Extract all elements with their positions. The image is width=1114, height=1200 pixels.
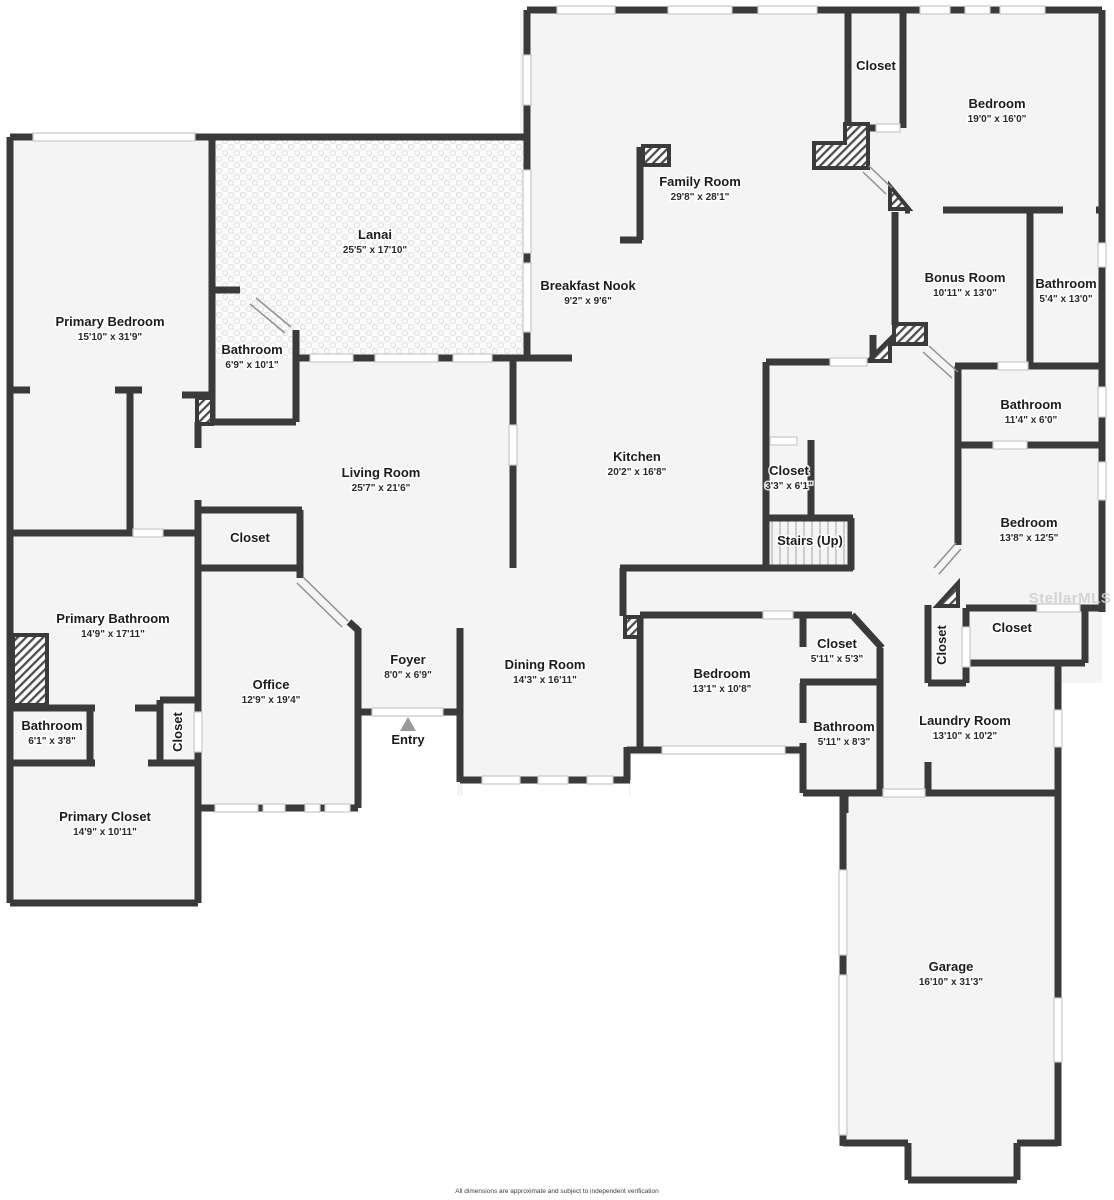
svg-text:Laundry Room: Laundry Room bbox=[919, 713, 1011, 728]
room-label-closet-office-vertical: Closet bbox=[170, 711, 185, 751]
svg-text:Dining Room: Dining Room bbox=[505, 657, 586, 672]
svg-text:Breakfast Nook: Breakfast Nook bbox=[540, 278, 636, 293]
svg-text:Closet: Closet bbox=[230, 530, 270, 545]
watermark: StellarMLS bbox=[1029, 590, 1112, 607]
svg-text:Bathroom: Bathroom bbox=[21, 718, 82, 733]
svg-text:14'9" x 10'11": 14'9" x 10'11" bbox=[73, 827, 137, 838]
room-label-bedroom-2: Bedroom13'8" x 12'5" bbox=[1000, 515, 1059, 544]
svg-text:Lanai: Lanai bbox=[358, 227, 392, 242]
svg-text:13'1" x 10'8": 13'1" x 10'8" bbox=[693, 684, 752, 695]
svg-text:Family Room: Family Room bbox=[659, 174, 741, 189]
room-label-entry: Entry bbox=[391, 732, 425, 747]
svg-text:Primary Bedroom: Primary Bedroom bbox=[55, 314, 164, 329]
svg-text:Closet: Closet bbox=[992, 620, 1032, 635]
svg-text:25'7" x 21'6": 25'7" x 21'6" bbox=[352, 483, 411, 494]
svg-text:19'0" x 16'0": 19'0" x 16'0" bbox=[968, 114, 1027, 125]
room-label-bonus-room: Bonus Room10'11" x 13'0" bbox=[925, 270, 1006, 299]
svg-text:Bedroom: Bedroom bbox=[1000, 515, 1057, 530]
room-label-bathroom-primary-2: Bathroom6'1" x 3'8" bbox=[21, 718, 82, 747]
svg-text:Bathroom: Bathroom bbox=[813, 719, 874, 734]
room-fills bbox=[10, 10, 1102, 1181]
svg-text:14'3" x 16'11": 14'3" x 16'11" bbox=[513, 675, 577, 686]
svg-text:Bathroom: Bathroom bbox=[1035, 276, 1096, 291]
room-label-kitchen: Kitchen20'2" x 16'8" bbox=[608, 449, 667, 478]
svg-text:10'11" x 13'0": 10'11" x 13'0" bbox=[933, 288, 997, 299]
svg-text:3'3" x 6'1": 3'3" x 6'1" bbox=[765, 481, 813, 492]
disclaimer: All dimensions are approximate and subje… bbox=[455, 1188, 659, 1195]
svg-text:Kitchen: Kitchen bbox=[613, 449, 661, 464]
svg-text:12'9" x 19'4": 12'9" x 19'4" bbox=[242, 695, 301, 706]
svg-text:Closet: Closet bbox=[769, 463, 809, 478]
room-label-family-room: Family Room29'8" x 28'1" bbox=[659, 174, 741, 203]
post-dining-ne bbox=[625, 617, 639, 637]
svg-text:Primary Bathroom: Primary Bathroom bbox=[56, 611, 169, 626]
svg-text:9'2" x 9'6": 9'2" x 9'6" bbox=[564, 296, 612, 307]
svg-text:6'9" x 10'1": 6'9" x 10'1" bbox=[225, 360, 278, 371]
room-label-bathroom-primary-hall: Bathroom6'9" x 10'1" bbox=[221, 342, 282, 371]
svg-text:25'5" x 17'10": 25'5" x 17'10" bbox=[343, 245, 408, 256]
svg-text:Garage: Garage bbox=[929, 959, 974, 974]
room-label-closet-kitchen: Closet3'3" x 6'1" bbox=[765, 463, 813, 492]
svg-text:8'0" x 6'9": 8'0" x 6'9" bbox=[384, 670, 432, 681]
fireplace-primary bbox=[197, 398, 212, 424]
room-label-stairs: Stairs (Up) bbox=[777, 533, 843, 548]
room-label-bathroom-hall: Bathroom11'4" x 6'0" bbox=[1000, 397, 1061, 426]
room-label-closet-hall-vertical: Closet bbox=[934, 624, 949, 664]
room-label-closet-family: Closet bbox=[856, 58, 896, 73]
svg-text:Closet: Closet bbox=[934, 624, 949, 664]
room-label-laundry-room: Laundry Room13'10" x 10'2" bbox=[919, 713, 1011, 742]
svg-text:Living Room: Living Room bbox=[342, 465, 421, 480]
svg-text:16'10" x 31'3": 16'10" x 31'3" bbox=[919, 977, 984, 988]
post-bonus bbox=[894, 324, 926, 344]
svg-text:5'11" x 8'3": 5'11" x 8'3" bbox=[818, 737, 871, 748]
room-label-closet-living: Closet bbox=[230, 530, 270, 545]
svg-text:15'10" x 31'9": 15'10" x 31'9" bbox=[78, 332, 143, 343]
svg-text:5'11" x 5'3": 5'11" x 5'3" bbox=[811, 654, 864, 665]
svg-text:14'9" x 17'11": 14'9" x 17'11" bbox=[81, 629, 145, 640]
fireplace-family bbox=[643, 146, 669, 165]
svg-text:Foyer: Foyer bbox=[390, 652, 425, 667]
room-label-closet-bedroom-3: Closet5'11" x 5'3" bbox=[811, 636, 864, 665]
svg-text:Closet: Closet bbox=[817, 636, 857, 651]
svg-text:Bathroom: Bathroom bbox=[1000, 397, 1061, 412]
svg-text:13'8" x 12'5": 13'8" x 12'5" bbox=[1000, 533, 1059, 544]
room-label-bedroom-1: Bedroom19'0" x 16'0" bbox=[968, 96, 1027, 125]
svg-text:11'4" x 6'0": 11'4" x 6'0" bbox=[1005, 415, 1058, 426]
room-label-bedroom-3: Bedroom13'1" x 10'8" bbox=[693, 666, 752, 695]
svg-text:29'8" x 28'1": 29'8" x 28'1" bbox=[671, 192, 730, 203]
svg-text:Office: Office bbox=[253, 677, 290, 692]
svg-text:13'10" x 10'2": 13'10" x 10'2" bbox=[933, 731, 998, 742]
svg-text:Entry: Entry bbox=[391, 732, 425, 747]
svg-text:20'2" x 16'8": 20'2" x 16'8" bbox=[608, 467, 667, 478]
svg-text:Stairs (Up): Stairs (Up) bbox=[777, 533, 843, 548]
svg-text:Bedroom: Bedroom bbox=[693, 666, 750, 681]
svg-text:Bathroom: Bathroom bbox=[221, 342, 282, 357]
svg-text:Bonus Room: Bonus Room bbox=[925, 270, 1006, 285]
svg-text:Closet: Closet bbox=[170, 711, 185, 751]
svg-text:Closet: Closet bbox=[856, 58, 896, 73]
room-label-closet-hall: Closet bbox=[992, 620, 1032, 635]
room-label-bathroom-3: Bathroom5'11" x 8'3" bbox=[813, 719, 874, 748]
svg-text:6'1" x 3'8": 6'1" x 3'8" bbox=[28, 736, 76, 747]
room-label-dining-room: Dining Room14'3" x 16'11" bbox=[505, 657, 586, 686]
floor-plan: Lanai25'5" x 17'10"Primary Bedroom15'10"… bbox=[0, 0, 1114, 1200]
room-label-bathroom-bonus: Bathroom5'4" x 13'0" bbox=[1035, 276, 1096, 305]
shower-primary bbox=[13, 635, 47, 705]
room-label-living-room: Living Room25'7" x 21'6" bbox=[342, 465, 421, 494]
svg-text:5'4" x 13'0": 5'4" x 13'0" bbox=[1039, 294, 1092, 305]
room-label-foyer: Foyer8'0" x 6'9" bbox=[384, 652, 432, 681]
svg-text:Bedroom: Bedroom bbox=[968, 96, 1025, 111]
svg-text:Primary Closet: Primary Closet bbox=[59, 809, 151, 824]
